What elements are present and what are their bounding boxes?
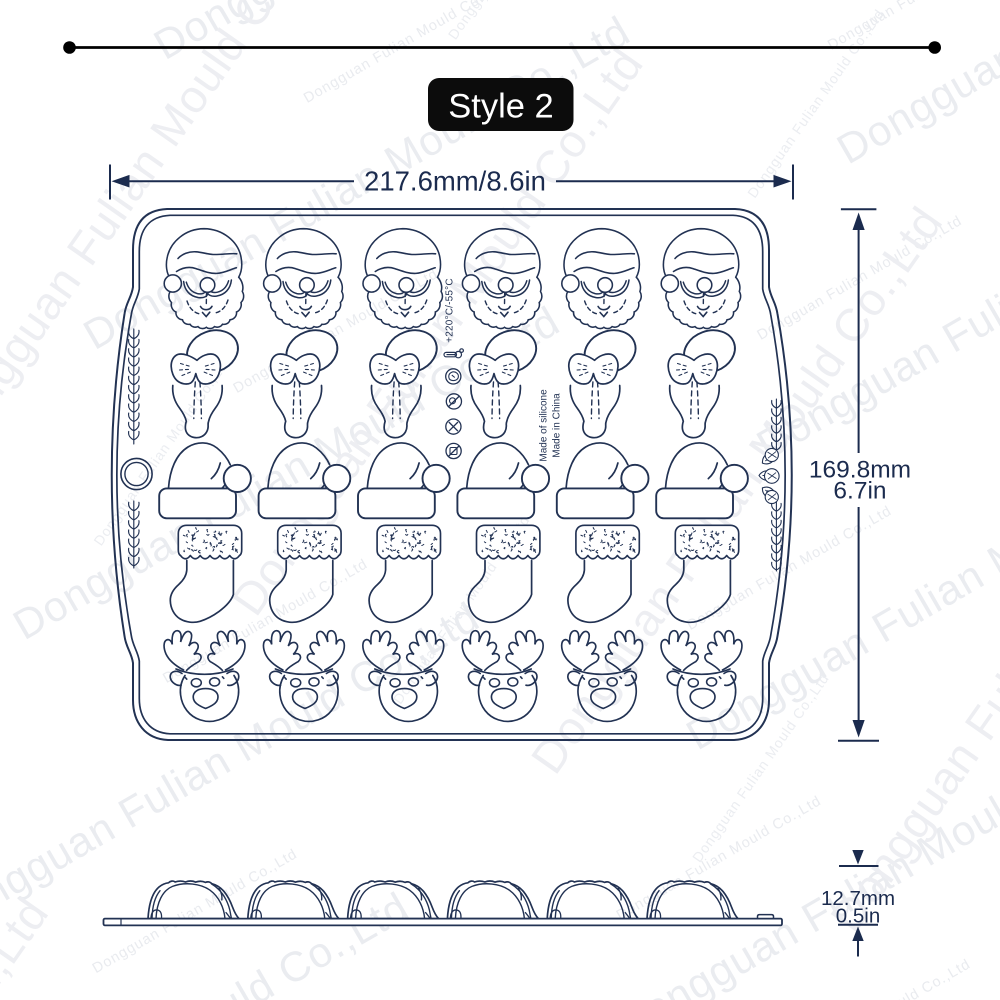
svg-text:Made of silicone: Made of silicone [539,389,550,462]
svg-text:+220°C/-55°C: +220°C/-55°C [445,278,456,343]
svg-text:Style 2: Style 2 [448,88,553,126]
svg-text:217.6mm/8.6in: 217.6mm/8.6in [364,166,546,197]
svg-text:6.7in: 6.7in [833,478,886,505]
svg-text:Made in China: Made in China [552,393,563,458]
svg-text:0.5in: 0.5in [836,905,880,928]
